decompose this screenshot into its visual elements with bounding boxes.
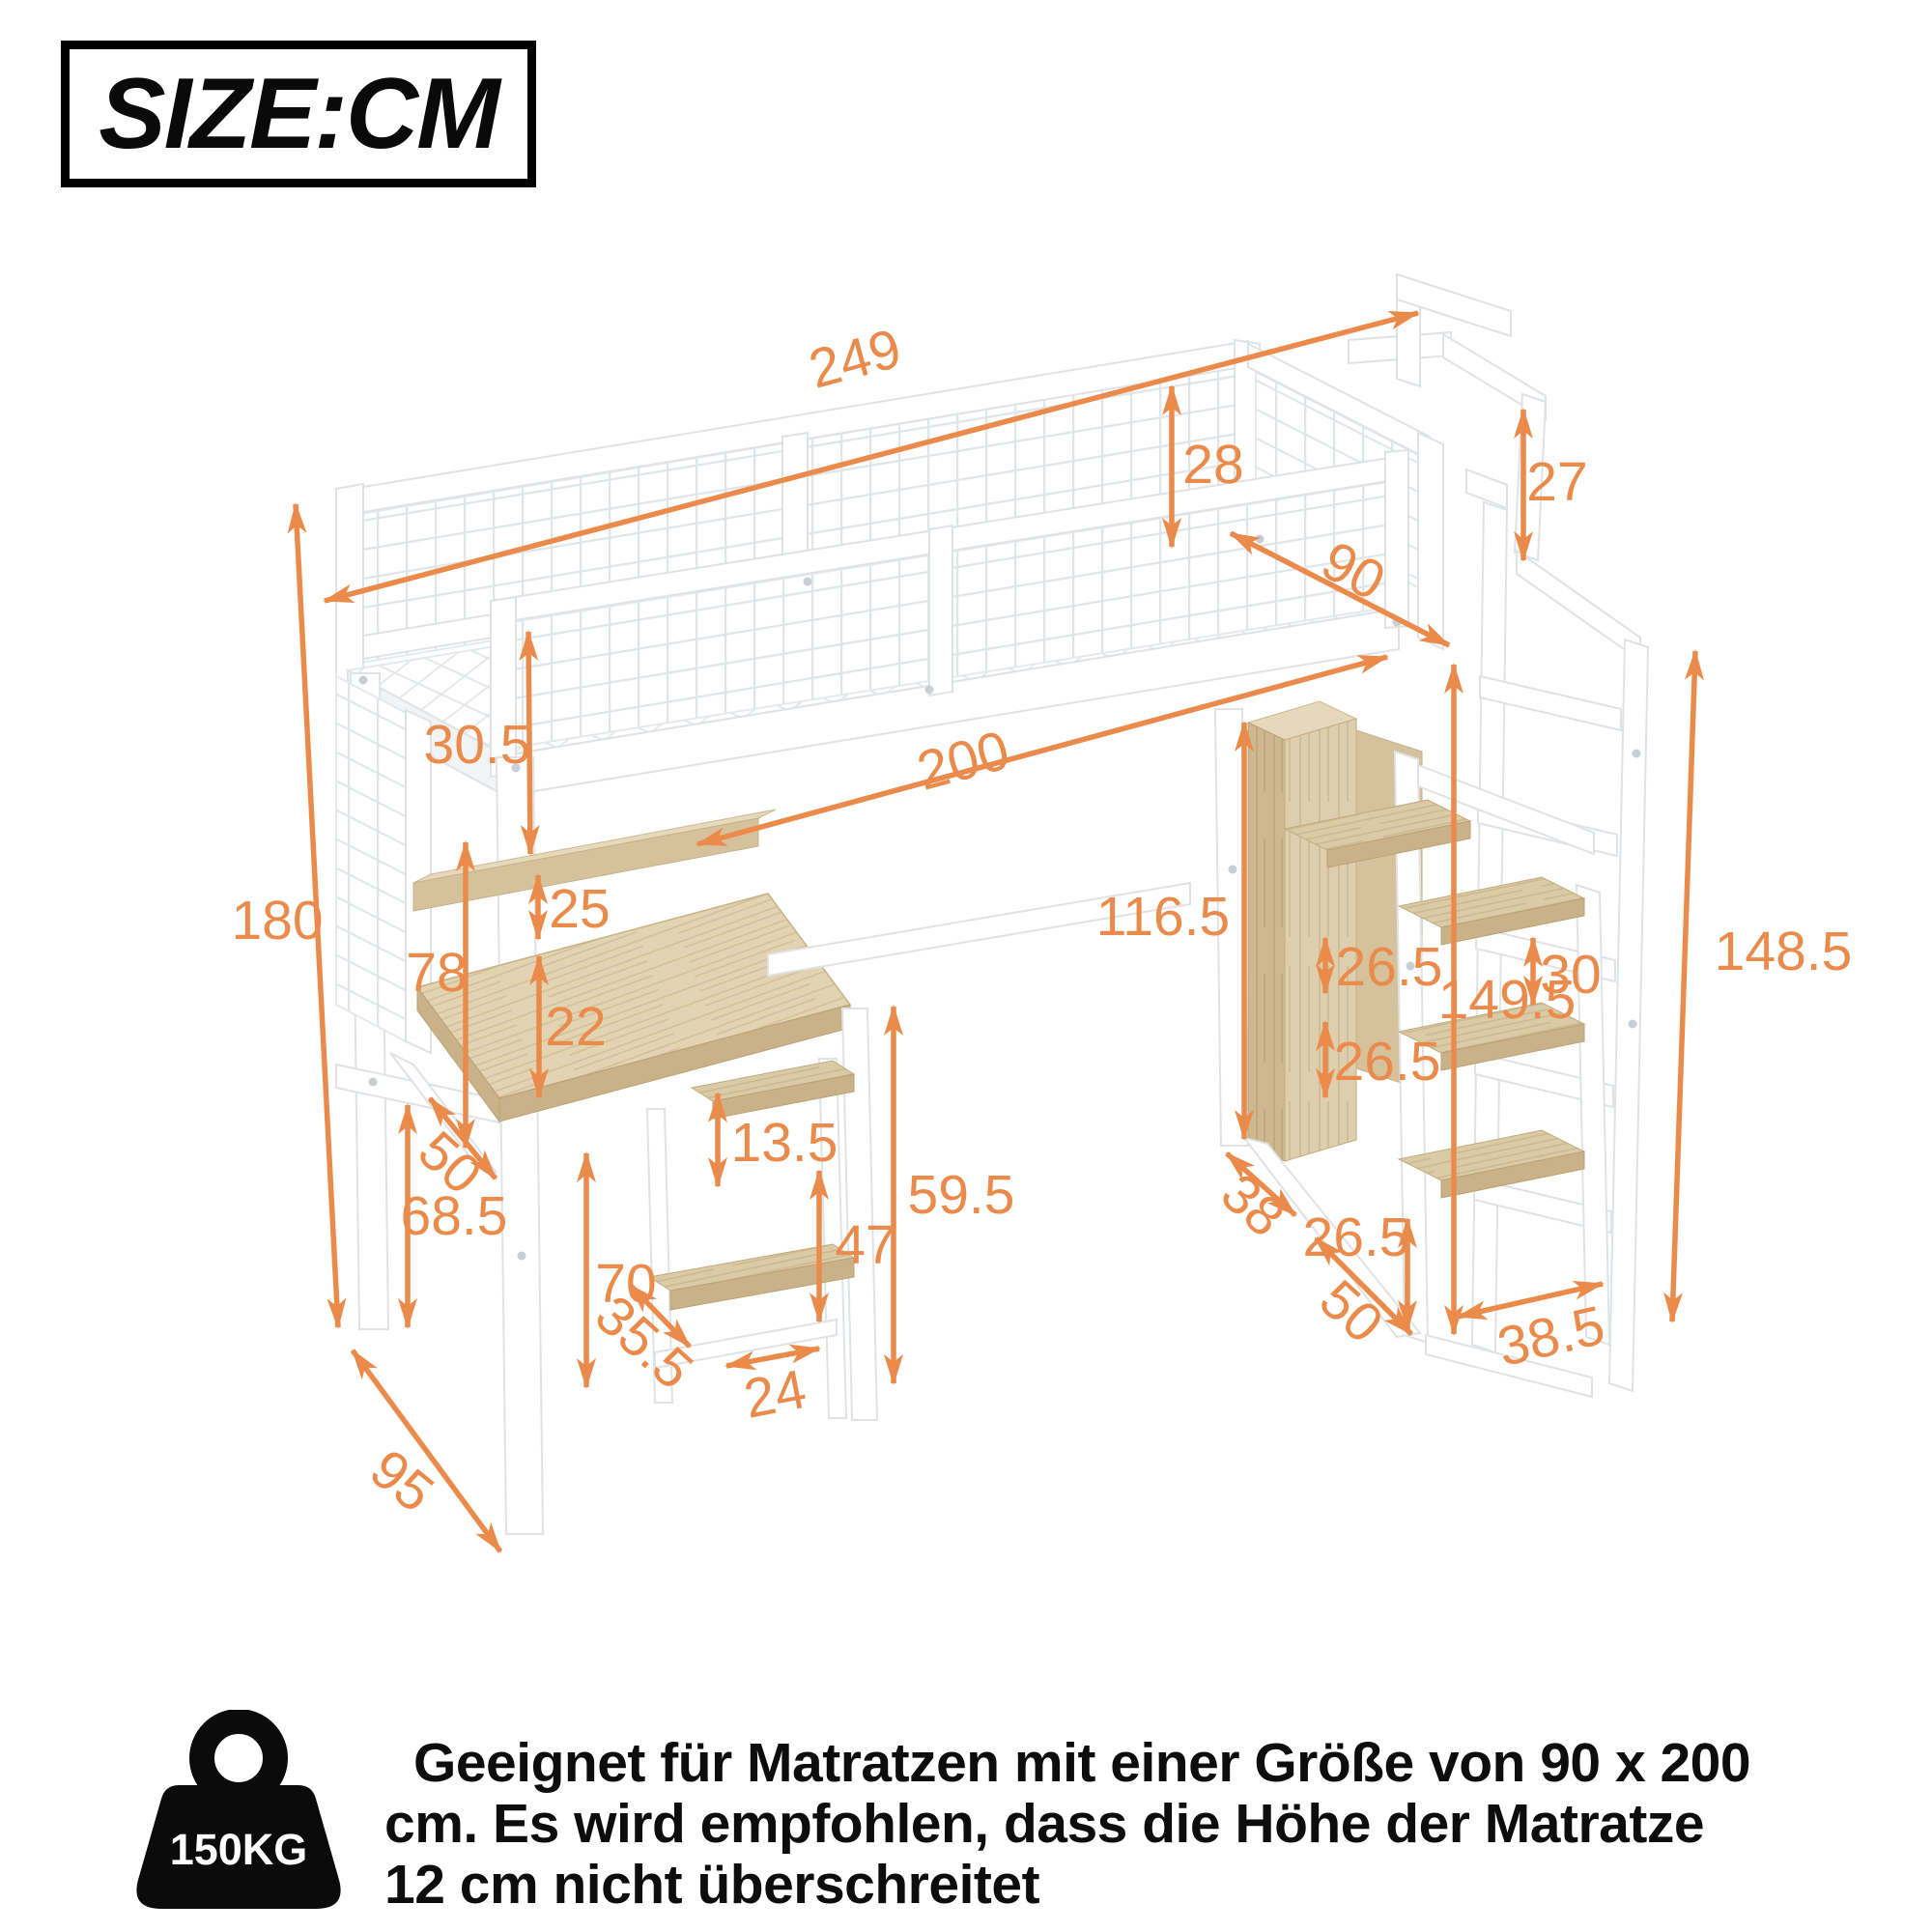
loft-bed-dimension-diagram: 249 28 27 90 30.5 200 <box>0 0 1932 1932</box>
note-line-3: 12 cm nicht überschreitet <box>384 1855 1891 1916</box>
ladder-outer-rail <box>1609 639 1648 1391</box>
dimension-label: 27 <box>1526 451 1587 513</box>
front-right-post <box>1385 450 1408 628</box>
dimension-label: 249 <box>803 317 907 400</box>
front-mid-post <box>929 526 952 696</box>
dimension-cabinet-gap-top: 26.5 <box>1325 936 1442 998</box>
dimension-label: 180 <box>231 890 323 952</box>
note-line-1: Geeignet für Matratzen mit einer Größe v… <box>384 1733 1891 1794</box>
mattress-note: Geeignet für Matratzen mit einer Größe v… <box>384 1733 1891 1916</box>
wardrobe-panel-front <box>1248 723 1285 1161</box>
handrail-descending-bar <box>1517 551 1640 661</box>
dimension-ladder-height: 148.5 <box>1672 651 1852 1321</box>
dimension-label: 116.5 <box>1096 886 1230 948</box>
dimension-desk-height: 59.5 <box>894 1007 1014 1383</box>
weight-capacity-icon: 150KG <box>116 1710 367 1932</box>
dimension-label: 200 <box>911 719 1015 802</box>
size-unit-box: SIZE:CM <box>61 41 536 187</box>
dimension-label: 68.5 <box>401 1185 508 1247</box>
weight-capacity-label: 150KG <box>170 1825 308 1874</box>
dimension-label: 149.5 <box>1438 969 1577 1031</box>
dimension-label: 95 <box>358 1437 445 1524</box>
dimension-label: 28 <box>1182 434 1243 496</box>
dimension-cabinet-gap-mid: 26.5 <box>1325 1022 1440 1097</box>
dimension-total-height: 180 <box>231 504 338 1327</box>
dimension-label: 59.5 <box>908 1164 1015 1226</box>
dimension-floor-depth: 95 <box>353 1350 500 1551</box>
size-unit-label: SIZE:CM <box>99 57 498 172</box>
dimension-label: 26.5 <box>1334 1031 1441 1093</box>
dimension-label: 78 <box>406 942 467 1004</box>
dimension-label: 25 <box>549 878 610 940</box>
dimension-label: 24 <box>739 1358 810 1431</box>
dimension-label: 26.5 <box>1303 1207 1410 1268</box>
dimension-label: 13.5 <box>731 1112 838 1174</box>
dimension-label: 26.5 <box>1336 936 1443 998</box>
dimension-tower-width: 24 <box>726 1349 819 1431</box>
dimension-label: 47 <box>835 1214 895 1276</box>
head-corner-post <box>1418 433 1443 649</box>
dimension-label: 30.5 <box>424 714 531 776</box>
note-line-2: cm. Es wird empfohlen, dass die Höhe der… <box>384 1794 1891 1855</box>
left-side-mesh <box>336 676 406 1041</box>
dimension-stair-height: 149.5 <box>1438 665 1577 1334</box>
dimension-label: 148.5 <box>1715 921 1853 982</box>
diagram-canvas: 249 28 27 90 30.5 200 <box>0 0 1932 1932</box>
weight-handle-icon <box>202 1721 275 1795</box>
dimension-label: 22 <box>545 996 606 1058</box>
dimension-shelf-gap-upper-left: 25 <box>538 875 611 940</box>
back-left-post <box>336 484 363 687</box>
dimension-label: 50 <box>1308 1268 1395 1355</box>
dimension-arrow <box>353 1350 500 1551</box>
dimension-arrow <box>1672 651 1695 1321</box>
